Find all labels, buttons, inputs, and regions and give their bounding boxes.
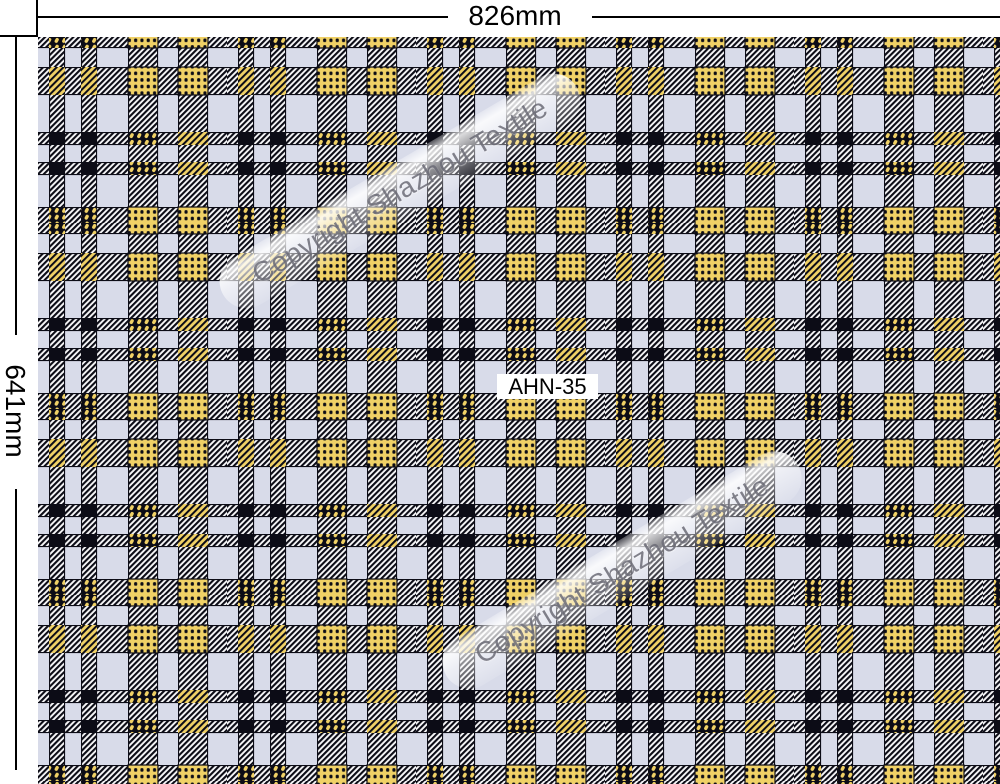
fabric-swatch-page: 826mm 641mm: [0, 0, 1000, 784]
height-dimension-label: 641mm: [0, 337, 30, 485]
height-dimension-line-top: [15, 37, 17, 335]
product-code-label: AHN-35: [497, 374, 598, 399]
height-extension-line: [0, 35, 38, 37]
width-dimension-label: 826mm: [440, 1, 590, 31]
width-dimension-line-right: [592, 16, 1000, 18]
height-dimension-line-bottom: [15, 489, 17, 770]
width-dimension-line-left: [37, 16, 448, 18]
width-extension-line: [36, 0, 38, 37]
